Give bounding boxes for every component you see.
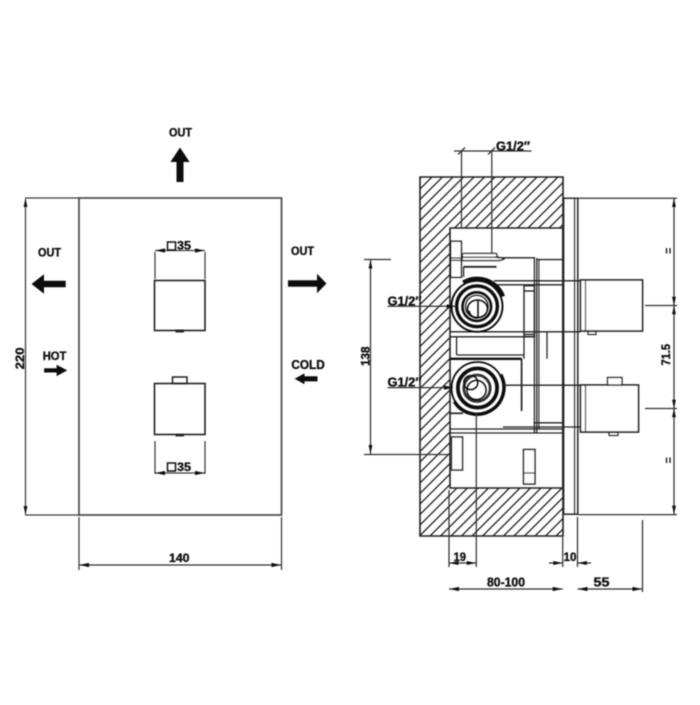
svg-text:80-100: 80-100 — [487, 576, 525, 590]
svg-text:G1/2″: G1/2″ — [496, 140, 530, 154]
svg-text:HOT: HOT — [43, 349, 67, 363]
svg-text:220: 220 — [15, 347, 27, 369]
svg-text:G1/2″: G1/2″ — [388, 376, 422, 390]
svg-text:140: 140 — [169, 551, 190, 565]
svg-text:OUT: OUT — [38, 246, 62, 260]
svg-text:55: 55 — [594, 576, 610, 590]
svg-text:19: 19 — [454, 550, 467, 564]
svg-text:35: 35 — [177, 462, 192, 474]
svg-text:71.5: 71.5 — [659, 344, 673, 366]
svg-text:OUT: OUT — [291, 244, 315, 258]
svg-text:35: 35 — [177, 241, 192, 253]
svg-text:138: 138 — [359, 346, 373, 366]
svg-text:10: 10 — [564, 550, 577, 564]
svg-text:COLD: COLD — [291, 358, 324, 372]
svg-text:OUT: OUT — [169, 126, 193, 140]
svg-text:G1/2″: G1/2″ — [388, 294, 422, 308]
